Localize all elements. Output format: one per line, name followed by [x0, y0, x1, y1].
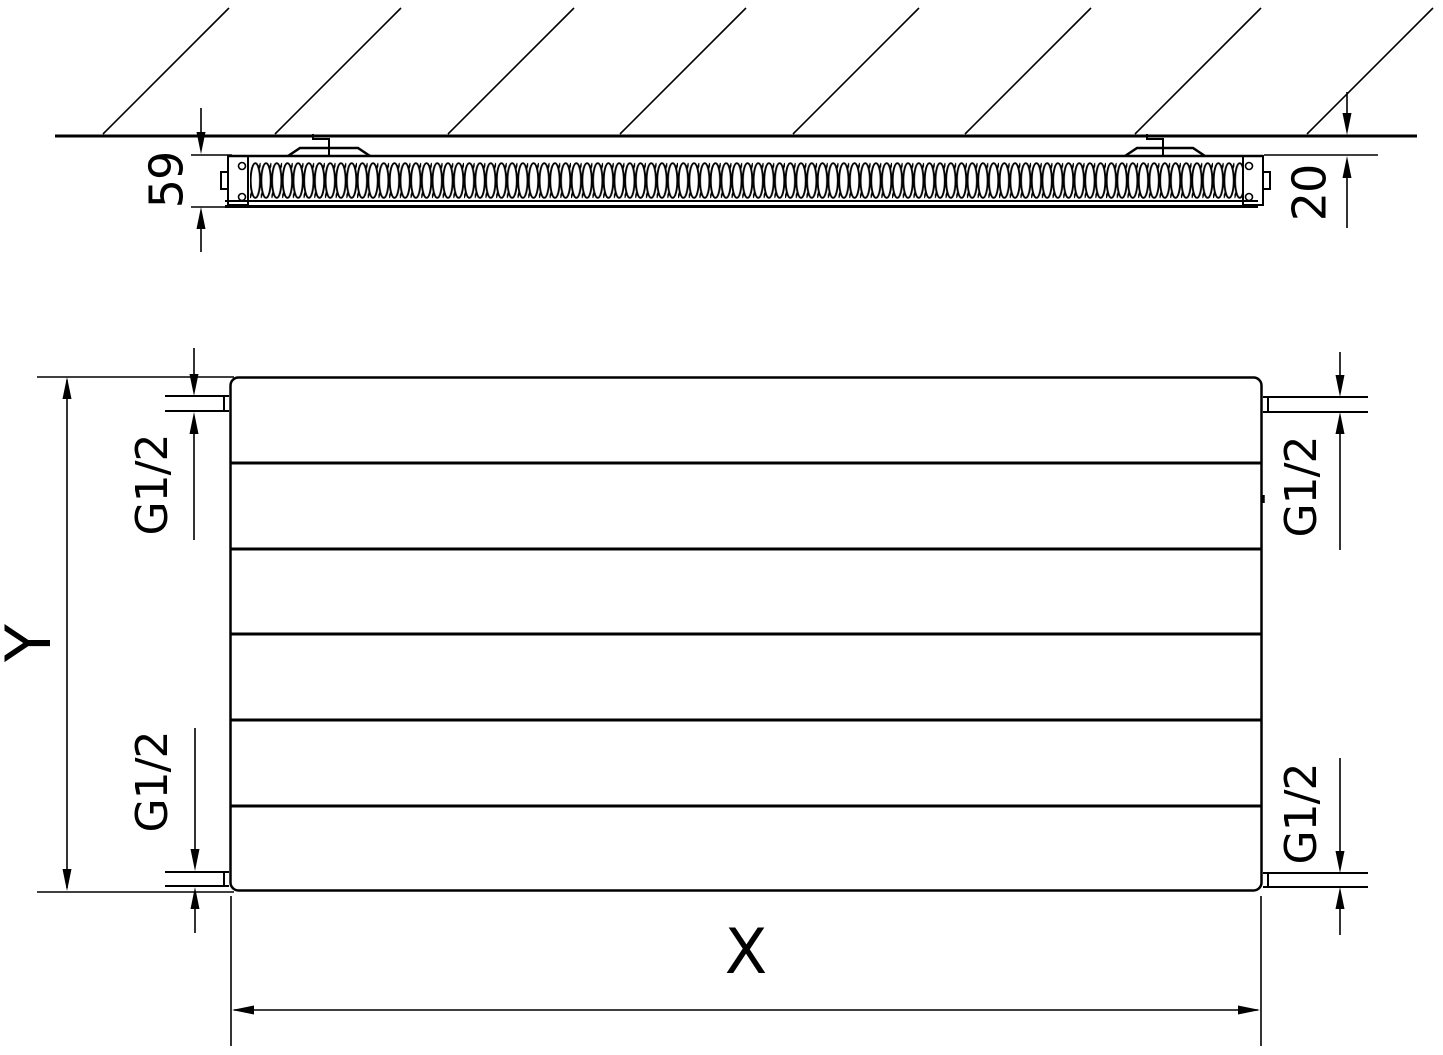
wall-hatching	[103, 8, 1433, 134]
dimension-thread-top-right: G1/2	[1276, 352, 1345, 550]
depth-value: 59	[140, 152, 194, 209]
thread-label: G1/2	[127, 435, 178, 536]
front-panel-line	[225, 201, 1258, 207]
end-cap-left	[221, 156, 248, 205]
thread-label: G1/2	[127, 732, 178, 833]
width-value: X	[725, 915, 767, 988]
connection-stub-bottom-left	[165, 872, 229, 886]
height-value: Y	[0, 624, 65, 663]
panel-grooves	[231, 463, 1261, 806]
dimension-height-y: Y	[0, 377, 234, 892]
dimension-thread-bottom-right: G1/2	[1276, 758, 1345, 935]
dimension-depth-59: 59	[140, 108, 233, 252]
front-view: G1/2 G1/2 G1/2 G1/2	[0, 348, 1368, 1046]
connection-stub-top-right	[1263, 397, 1368, 412]
convector-fins	[250, 162, 1242, 199]
radiator-drawing: 59 20	[0, 0, 1443, 1055]
end-cap-right	[1243, 156, 1270, 205]
wall-gap-value: 20	[1283, 165, 1337, 222]
thread-label: G1/2	[1276, 437, 1327, 538]
dimension-thread-bottom-left: G1/2	[127, 728, 200, 933]
dimension-width-x: X	[231, 896, 1261, 1046]
connection-stub-top-left	[165, 396, 229, 411]
top-view: 59 20	[55, 8, 1433, 252]
drawing-canvas: 59 20	[0, 0, 1443, 1055]
thread-label: G1/2	[1276, 764, 1327, 865]
dimension-wall-gap-20: 20	[1264, 92, 1378, 228]
radiator-section	[221, 156, 1270, 207]
connection-stub-bottom-right	[1263, 873, 1368, 887]
